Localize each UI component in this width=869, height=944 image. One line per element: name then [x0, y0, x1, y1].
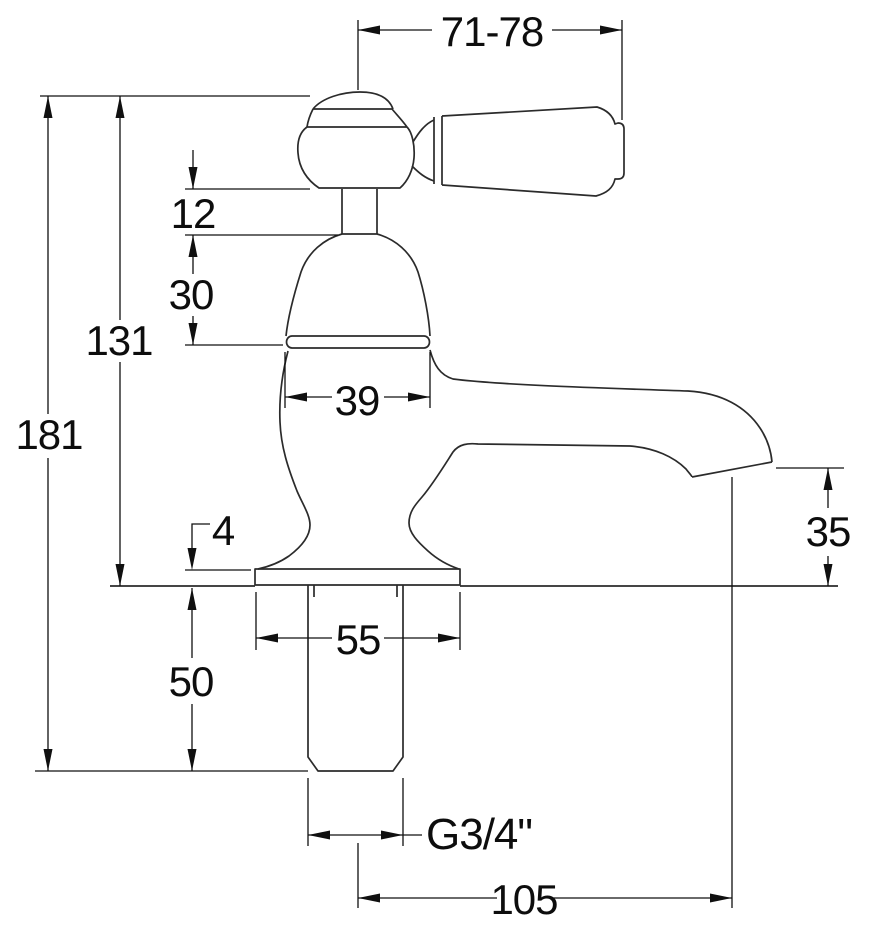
arrowhead-left — [256, 634, 278, 643]
base-flange — [255, 569, 460, 585]
lever-handle — [442, 107, 624, 196]
arrowhead-down — [188, 749, 197, 771]
arrowhead-down — [189, 167, 198, 189]
dim-label-tail-length: 50 — [169, 658, 214, 705]
arrowhead-down — [824, 564, 833, 586]
arrowhead-right — [600, 26, 622, 35]
bead-ring — [287, 336, 430, 348]
dim-label-deck-to-top: 131 — [85, 317, 152, 364]
arrowhead-right — [710, 894, 732, 903]
leader-line — [192, 524, 210, 550]
arrowhead-down — [116, 564, 125, 586]
body-right-edge-spout-underside — [409, 444, 692, 569]
handle-band — [307, 109, 407, 127]
dim-label-collar-height: 12 — [171, 190, 216, 237]
arrowhead-down — [189, 323, 198, 345]
handle-dome — [313, 92, 393, 109]
lever-collar — [434, 116, 442, 185]
arrowhead-down — [44, 749, 53, 771]
dim-label-spout-clearance: 35 — [806, 508, 851, 555]
arrowhead-right — [438, 634, 460, 643]
arrowhead-left — [285, 393, 307, 402]
arrowhead-down — [188, 548, 197, 570]
spout-outlet-rim — [692, 462, 772, 477]
dim-bonnet-width: 39 — [285, 352, 430, 424]
dim-handle-span: 71-78 — [358, 8, 622, 120]
arrowhead-right — [408, 393, 430, 402]
body-left-edge — [258, 351, 310, 569]
arrowhead-left — [358, 894, 380, 903]
dim-collar-height: 12 — [171, 150, 338, 237]
handle-hub — [298, 127, 414, 188]
arrowhead-up — [44, 96, 53, 118]
dim-thread-size: G3/4" — [308, 778, 532, 859]
arrowhead-up — [189, 235, 198, 257]
arrowhead-left — [358, 26, 380, 35]
arrowhead-up — [824, 468, 833, 490]
dim-label-bonnet-width: 39 — [335, 377, 380, 424]
dim-deck-to-top: 131 — [85, 96, 152, 586]
dim-base-plate-thickness: 4 — [185, 507, 251, 570]
arrowhead-up — [188, 588, 197, 610]
arrowhead-right — [381, 831, 403, 840]
dim-label-overall-height: 181 — [15, 411, 82, 458]
tap-outline — [110, 92, 838, 771]
dim-label-handle-span: 71-78 — [441, 8, 543, 55]
handle-neck — [412, 120, 434, 181]
bonnet-bell — [286, 234, 430, 336]
dim-overall-height: 181 — [15, 96, 310, 771]
extension-lines — [358, 477, 732, 908]
dim-spout-reach: 105 — [358, 477, 732, 923]
dimensions: 71-78 12 30 131 181 — [15, 8, 850, 923]
drawing-canvas: 71-78 12 30 131 181 — [0, 0, 869, 944]
dim-base-width: 55 — [256, 592, 460, 663]
arrowhead-up — [116, 96, 125, 118]
dim-label-spout-reach: 105 — [490, 876, 557, 923]
dim-tail-length: 50 — [169, 588, 214, 771]
arrowhead-left — [308, 831, 330, 840]
valve-stem — [342, 189, 377, 234]
technical-drawing: 71-78 12 30 131 181 — [0, 0, 869, 944]
dim-label-thread-size: G3/4" — [426, 810, 532, 859]
dim-bonnet-height: 30 — [169, 235, 283, 345]
dim-label-base-plate-thickness: 4 — [212, 507, 235, 554]
dim-spout-clearance: 35 — [776, 468, 850, 586]
tail-pipe — [308, 585, 403, 771]
dim-label-base-width: 55 — [336, 616, 381, 663]
dim-label-bonnet-height: 30 — [169, 271, 214, 318]
